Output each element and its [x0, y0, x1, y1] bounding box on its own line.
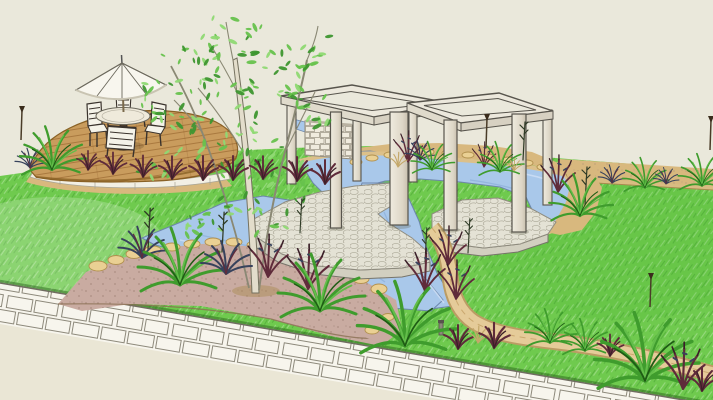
- pergola-post: [331, 112, 342, 228]
- boulder: [462, 152, 474, 158]
- boulder: [89, 261, 107, 271]
- bollard-plant: [438, 320, 444, 335]
- tree-leaf: [250, 149, 252, 155]
- pergola-post: [444, 120, 457, 230]
- boulder: [108, 256, 124, 265]
- pergola-post: [390, 112, 408, 225]
- boulder: [205, 238, 221, 246]
- boulder: [366, 155, 378, 161]
- tree-leaf: [155, 112, 164, 116]
- scene-canvas: [0, 0, 713, 400]
- landscape-render-stage: [0, 0, 713, 400]
- pergola-post: [543, 110, 552, 205]
- tree-leaf: [280, 49, 283, 57]
